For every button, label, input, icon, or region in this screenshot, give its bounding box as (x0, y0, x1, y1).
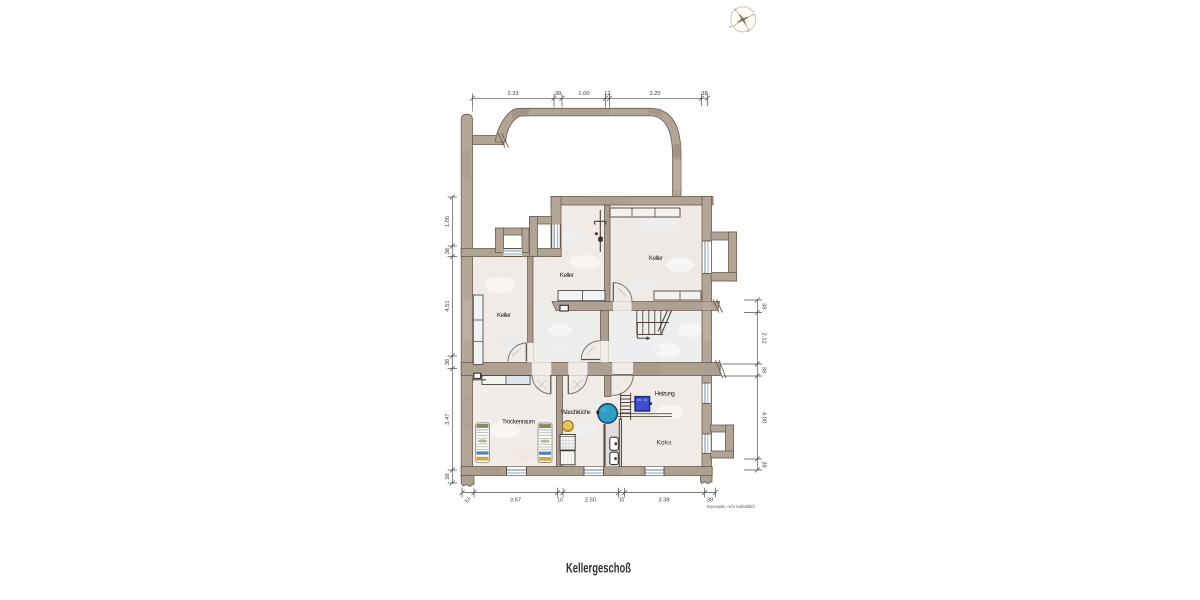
svg-text:3.57: 3.57 (510, 498, 521, 504)
svg-text:4.00: 4.00 (761, 412, 767, 423)
svg-text:38: 38 (761, 303, 767, 309)
svg-text:Trockenraum: Trockenraum (502, 419, 535, 426)
svg-text:38: 38 (701, 91, 707, 97)
svg-text:2.12: 2.12 (761, 333, 767, 344)
svg-text:4.51: 4.51 (445, 300, 451, 311)
svg-text:Keller: Keller (560, 272, 575, 279)
svg-text:10: 10 (557, 498, 563, 504)
svg-text:Kellergeschoß: Kellergeschoß (566, 561, 631, 577)
svg-text:38: 38 (445, 473, 451, 479)
svg-text:Exposeplan, nicht maßstäblich: Exposeplan, nicht maßstäblich (707, 504, 755, 509)
svg-text:38: 38 (445, 359, 451, 365)
svg-text:3.47: 3.47 (445, 414, 451, 425)
svg-text:38: 38 (761, 461, 767, 467)
svg-text:Koks: Koks (657, 440, 672, 447)
svg-text:38: 38 (445, 248, 451, 254)
svg-text:3.20: 3.20 (649, 91, 660, 97)
svg-text:2.50: 2.50 (585, 498, 596, 504)
svg-text:O: O (752, 14, 755, 18)
svg-text:1.05: 1.05 (445, 216, 451, 227)
svg-text:12: 12 (604, 91, 610, 97)
svg-text:38: 38 (555, 91, 561, 97)
svg-text:10: 10 (619, 498, 625, 504)
svg-text:Keller: Keller (649, 255, 664, 262)
svg-text:Waschküche: Waschküche (561, 409, 591, 416)
svg-text:1.00: 1.00 (578, 91, 589, 97)
svg-text:Heizung: Heizung (655, 391, 675, 398)
svg-text:38: 38 (761, 367, 767, 373)
svg-text:Keller: Keller (497, 312, 512, 319)
svg-text:38: 38 (707, 498, 713, 504)
svg-text:3.38: 3.38 (658, 498, 669, 504)
svg-text:3.33: 3.33 (507, 91, 518, 97)
